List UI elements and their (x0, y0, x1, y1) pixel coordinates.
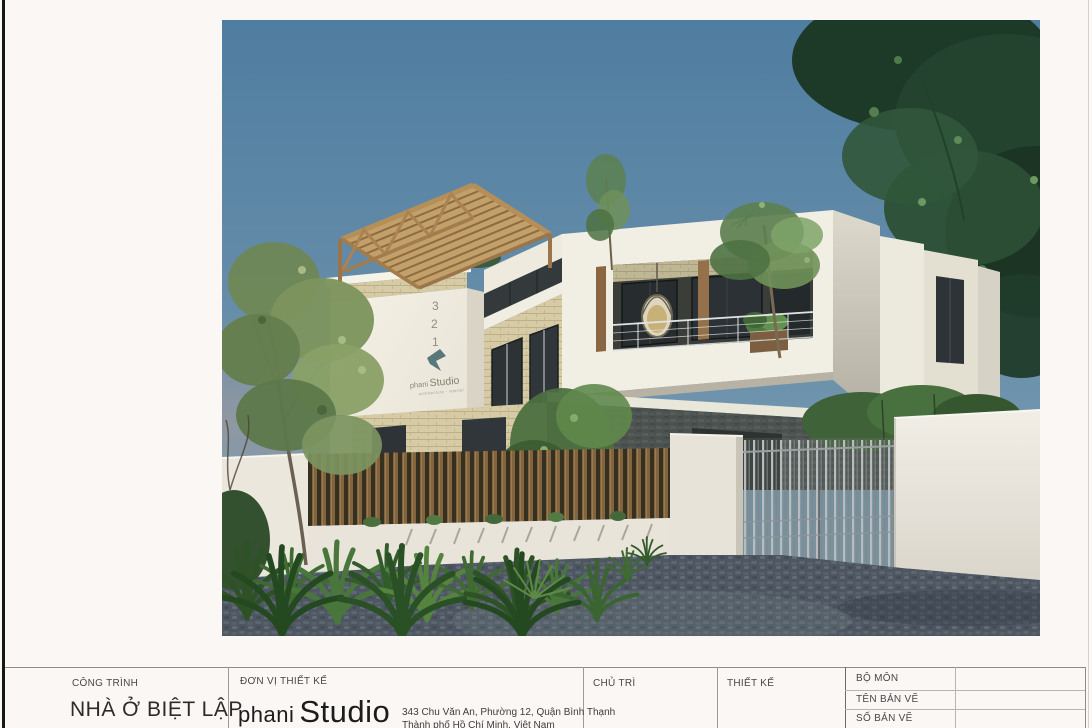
title-block-right-line (1085, 667, 1086, 728)
info-row-label-so-ban-ve: SỐ BẢN VẼ (856, 713, 913, 724)
logo-text-phani: phani (238, 702, 294, 728)
sign-digit-2: 2 (431, 317, 438, 331)
sign-digit-1: 1 (432, 335, 439, 349)
info-row-label-bo-mon: BỘ MÔN (856, 673, 898, 684)
designer-label: THIẾT KẾ (727, 678, 774, 689)
lead-label: CHỦ TRÌ (593, 678, 635, 689)
sheet-right-border (1088, 0, 1089, 728)
address-line-2: Thành phố Hồ Chí Minh, Việt Nam (402, 719, 615, 728)
sign-digit-3: 3 (432, 299, 439, 313)
design-firm-label: ĐƠN VỊ THIẾT KẾ (240, 676, 327, 687)
divider-3 (717, 667, 718, 728)
sign-brand-first: phani (409, 379, 428, 390)
info-value-divider (955, 667, 956, 728)
design-firm-logo: phani Studio (238, 694, 390, 728)
sheet-left-border (2, 0, 5, 728)
wood-column (596, 266, 606, 352)
address-line-1: 343 Chu Văn An, Phường 12, Quận Bình Thạ… (402, 706, 615, 719)
info-row-line-1 (845, 690, 1085, 691)
project-label: CÔNG TRÌNH (72, 678, 138, 689)
info-row-line-2 (845, 709, 1085, 710)
design-firm-address: 343 Chu Văn An, Phường 12, Quận Bình Thạ… (402, 706, 615, 728)
divider-4 (845, 667, 846, 728)
drawing-sheet: 3 2 1 phani Studio architecture - interi… (0, 0, 1092, 728)
project-title: NHÀ Ở BIỆT LẬP (70, 698, 243, 722)
wood-column (698, 260, 709, 340)
rendering-image: 3 2 1 phani Studio architecture - interi… (222, 20, 1040, 636)
rendering-svg: 3 2 1 phani Studio architecture - interi… (222, 20, 1040, 636)
title-block-top-line (2, 667, 1085, 668)
info-row-label-ten-ban-ve: TÊN BẢN VẼ (856, 694, 918, 705)
logo-text-studio: Studio (299, 694, 390, 728)
